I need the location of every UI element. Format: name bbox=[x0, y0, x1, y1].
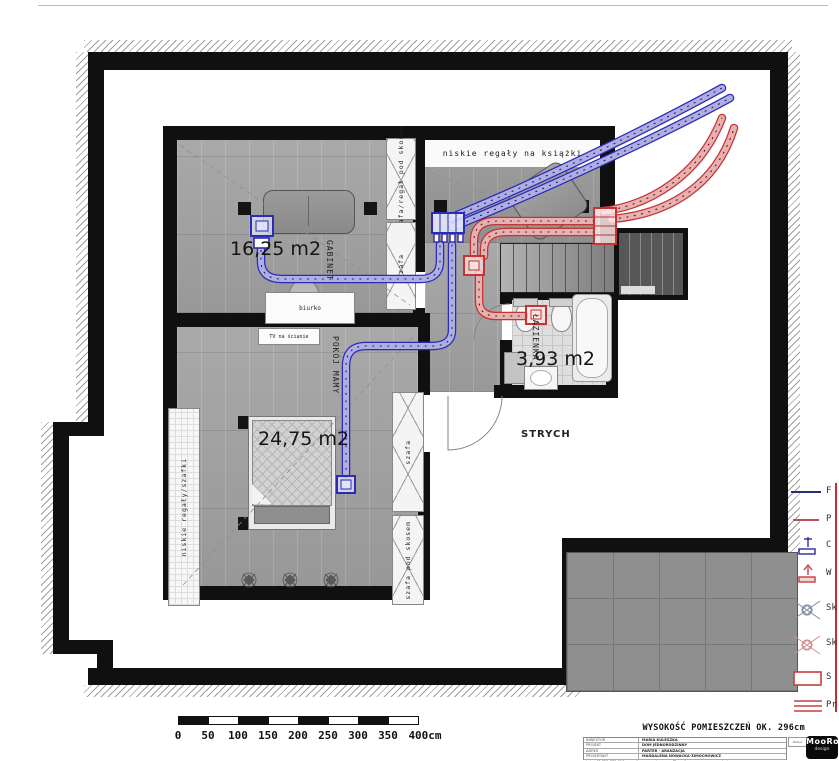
mooroo-logo: MooRoo design bbox=[806, 736, 838, 759]
column bbox=[364, 202, 377, 215]
supply-line-icon bbox=[791, 491, 821, 493]
row-label: ADRES bbox=[584, 749, 639, 753]
scale-bar-segment bbox=[298, 716, 329, 725]
row-label: PROJEKTANT bbox=[584, 754, 639, 758]
legend-label: P bbox=[826, 514, 831, 524]
staircase bbox=[500, 243, 618, 293]
scale-bar-segment bbox=[178, 716, 209, 725]
room-label-bathroom: ŁAZIENKA bbox=[531, 314, 540, 361]
wardrobe-office-label: szafa bbox=[397, 254, 405, 279]
column bbox=[434, 200, 447, 213]
legend-label: C bbox=[826, 540, 831, 550]
wardrobe-sloped-office: szafa/regał pod skosem bbox=[386, 138, 416, 220]
wall-top bbox=[88, 52, 788, 70]
bookshelf-strip: niskie regały na książki bbox=[425, 140, 600, 168]
legend-label: F bbox=[826, 486, 831, 496]
wall-rooms-bottom bbox=[163, 586, 430, 600]
wall-left-bump bbox=[53, 422, 69, 654]
row-value: MAGDALENA NOWACKA-ZIMOCHOWICZ bbox=[639, 754, 786, 758]
scale-tick: 300 bbox=[348, 729, 368, 742]
wardrobe-office: szafa bbox=[386, 222, 416, 310]
wardrobe-bedroom-label: szafa bbox=[404, 440, 412, 465]
door-arc-bedroom bbox=[448, 396, 502, 450]
scale-bar-segment bbox=[388, 716, 419, 725]
ceiling-height-note: WYSOKOŚĆ POMIESZCZEŃ OK. 296cm bbox=[585, 723, 805, 733]
scale-bar-segment bbox=[328, 716, 359, 725]
scale-tick: 100 bbox=[228, 729, 248, 742]
room-label-attic: STRYCH bbox=[521, 429, 571, 440]
scale-tick: 150 bbox=[258, 729, 278, 742]
scale-bar-segment bbox=[208, 716, 239, 725]
legend-label: S bbox=[826, 672, 831, 682]
legend-label: Sk bbox=[826, 638, 837, 648]
row-value: MARIA KULESZKA bbox=[639, 738, 786, 742]
area-label-gabinet: 16,25 m2 bbox=[230, 238, 321, 260]
row-label: INWESTOR bbox=[584, 738, 639, 742]
room-label-bedroom: POKÓJ MAMY bbox=[331, 336, 340, 394]
row-value: DOM JEDNORODZINNY bbox=[639, 743, 786, 747]
legend-label: W bbox=[826, 568, 831, 578]
wall-right bbox=[770, 52, 788, 552]
bed-duvet-fold bbox=[252, 484, 272, 504]
desk-label: biurko bbox=[299, 305, 321, 312]
bidet-tank bbox=[549, 298, 574, 307]
scale-tick: 250 bbox=[318, 729, 338, 742]
title-block-table: INWESTOR MARIA KULESZKA PROJEKT DOM JEDN… bbox=[583, 737, 787, 760]
legend-label: Sk bbox=[826, 603, 837, 613]
exhaust-line-icon bbox=[793, 519, 819, 521]
stair-landing bbox=[621, 286, 655, 294]
bookshelf-label: niskie regały na książki bbox=[443, 149, 583, 158]
scale-bar: 0 50 100 150 200 250 300 350 400cm bbox=[178, 716, 438, 744]
exhaust-duct-out-a bbox=[604, 118, 722, 211]
top-rule bbox=[38, 5, 828, 6]
desk: biurko bbox=[265, 292, 355, 324]
scale-tick: 0 bbox=[175, 729, 182, 742]
sink-basin bbox=[530, 370, 552, 386]
unit-box-icon bbox=[791, 668, 825, 690]
row-label: PROJEKT bbox=[584, 743, 639, 747]
ceiling-diffuser-supply-icon bbox=[791, 598, 825, 622]
scale-bar-segment bbox=[268, 716, 299, 725]
wall-lounge-right bbox=[600, 126, 615, 244]
scale-tick: 400cm bbox=[408, 729, 441, 742]
sofa bbox=[263, 190, 355, 234]
wall-left-upper bbox=[88, 52, 104, 435]
shelves-bedroom-label: niskie regały/szafki bbox=[180, 458, 188, 556]
tv-strip: TV na ścianie bbox=[258, 328, 320, 345]
exhaust-valve-icon bbox=[791, 564, 825, 586]
supply-valve-icon bbox=[791, 536, 825, 558]
hatch-band-bottom bbox=[84, 685, 582, 697]
scale-tick: 50 bbox=[201, 729, 214, 742]
floor-plan-canvas: biurko niskie regały na książki szafa/re… bbox=[0, 0, 839, 761]
wardrobe-sloped-bedroom: szafa pod skosem bbox=[392, 515, 424, 605]
column bbox=[238, 202, 251, 215]
scale-tick: 200 bbox=[288, 729, 308, 742]
grille-icon bbox=[791, 697, 825, 717]
wall-bedroom-right-a bbox=[418, 313, 430, 395]
scale-tick: 350 bbox=[378, 729, 398, 742]
area-label-bathroom: 3,93 m2 bbox=[516, 348, 595, 370]
legend-edge-line bbox=[835, 483, 837, 712]
wardrobe-bedroom: szafa bbox=[392, 392, 424, 512]
scale-bar-segment bbox=[238, 716, 269, 725]
exhaust-duct-out-b bbox=[612, 128, 734, 219]
floor-hall bbox=[425, 243, 502, 392]
bed-foot-band bbox=[254, 506, 330, 524]
scale-bar-segment bbox=[358, 716, 389, 725]
scale-cell: SKALA bbox=[788, 737, 807, 747]
wardrobe-sloped-bedroom-label: szafa pod skosem bbox=[404, 521, 412, 600]
wall-left-lower bbox=[97, 640, 113, 685]
legend-label: Pr bbox=[826, 700, 837, 710]
room-label-gabinet: GABINET bbox=[325, 240, 334, 281]
ceiling-diffuser-exhaust-icon bbox=[791, 633, 825, 657]
tv-label: TV na ścianie bbox=[269, 334, 308, 340]
wardrobe-sloped-office-label: szafa/regał pod skosem bbox=[397, 125, 405, 233]
hatch-band-top bbox=[84, 40, 792, 52]
logo-subtext: design bbox=[806, 748, 838, 752]
hatch-band-right bbox=[788, 52, 800, 552]
wall-bottom bbox=[88, 668, 578, 685]
toilet-tank bbox=[513, 298, 538, 307]
area-label-bedroom: 24,75 m2 bbox=[258, 428, 349, 450]
row-value: PARTER - ARANŻACJA bbox=[639, 749, 786, 753]
shelves-bedroom: niskie regały/szafki bbox=[168, 408, 200, 606]
sofa-cushion-line bbox=[308, 196, 309, 226]
hatch-band-left-bump bbox=[41, 422, 53, 654]
hatch-band-left-upper bbox=[76, 52, 88, 435]
terrace bbox=[566, 552, 798, 692]
